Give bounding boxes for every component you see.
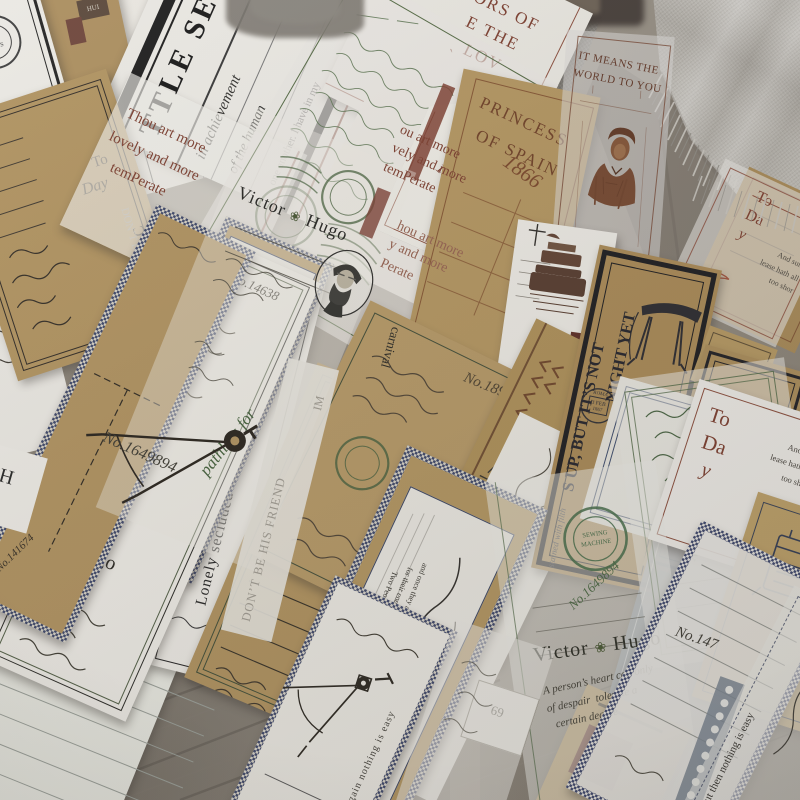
svg-text:MACHINE: MACHINE xyxy=(581,538,612,549)
svg-text:No.141674: No.141674 xyxy=(0,532,37,575)
svg-text:PARIS: PARIS xyxy=(0,42,4,52)
svg-text:No.147: No.147 xyxy=(672,624,721,654)
